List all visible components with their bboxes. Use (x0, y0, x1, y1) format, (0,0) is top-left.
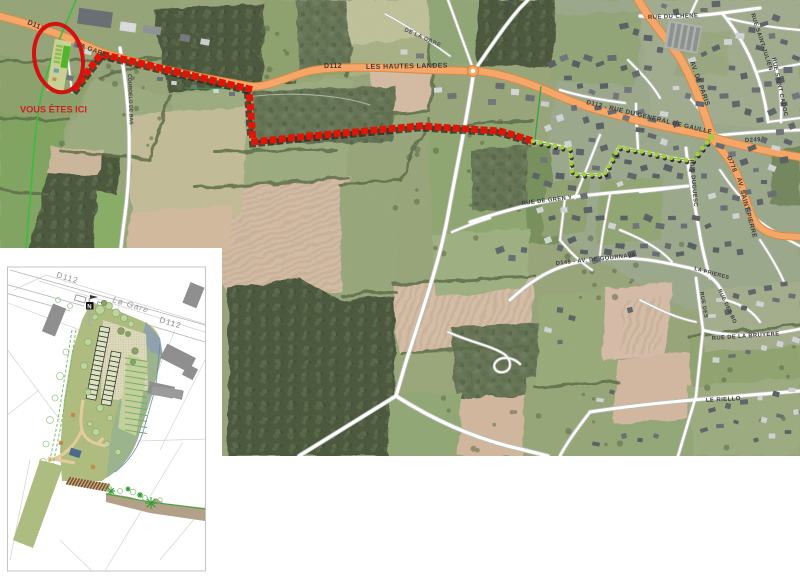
svg-text:D249: D249 (745, 137, 761, 144)
svg-text:LES HAUTES LANDES: LES HAUTES LANDES (366, 63, 448, 71)
svg-text:VOUS ÊTES ICI: VOUS ÊTES ICI (20, 104, 87, 115)
svg-text:N: N (87, 304, 91, 310)
svg-text:D112: D112 (324, 63, 342, 70)
